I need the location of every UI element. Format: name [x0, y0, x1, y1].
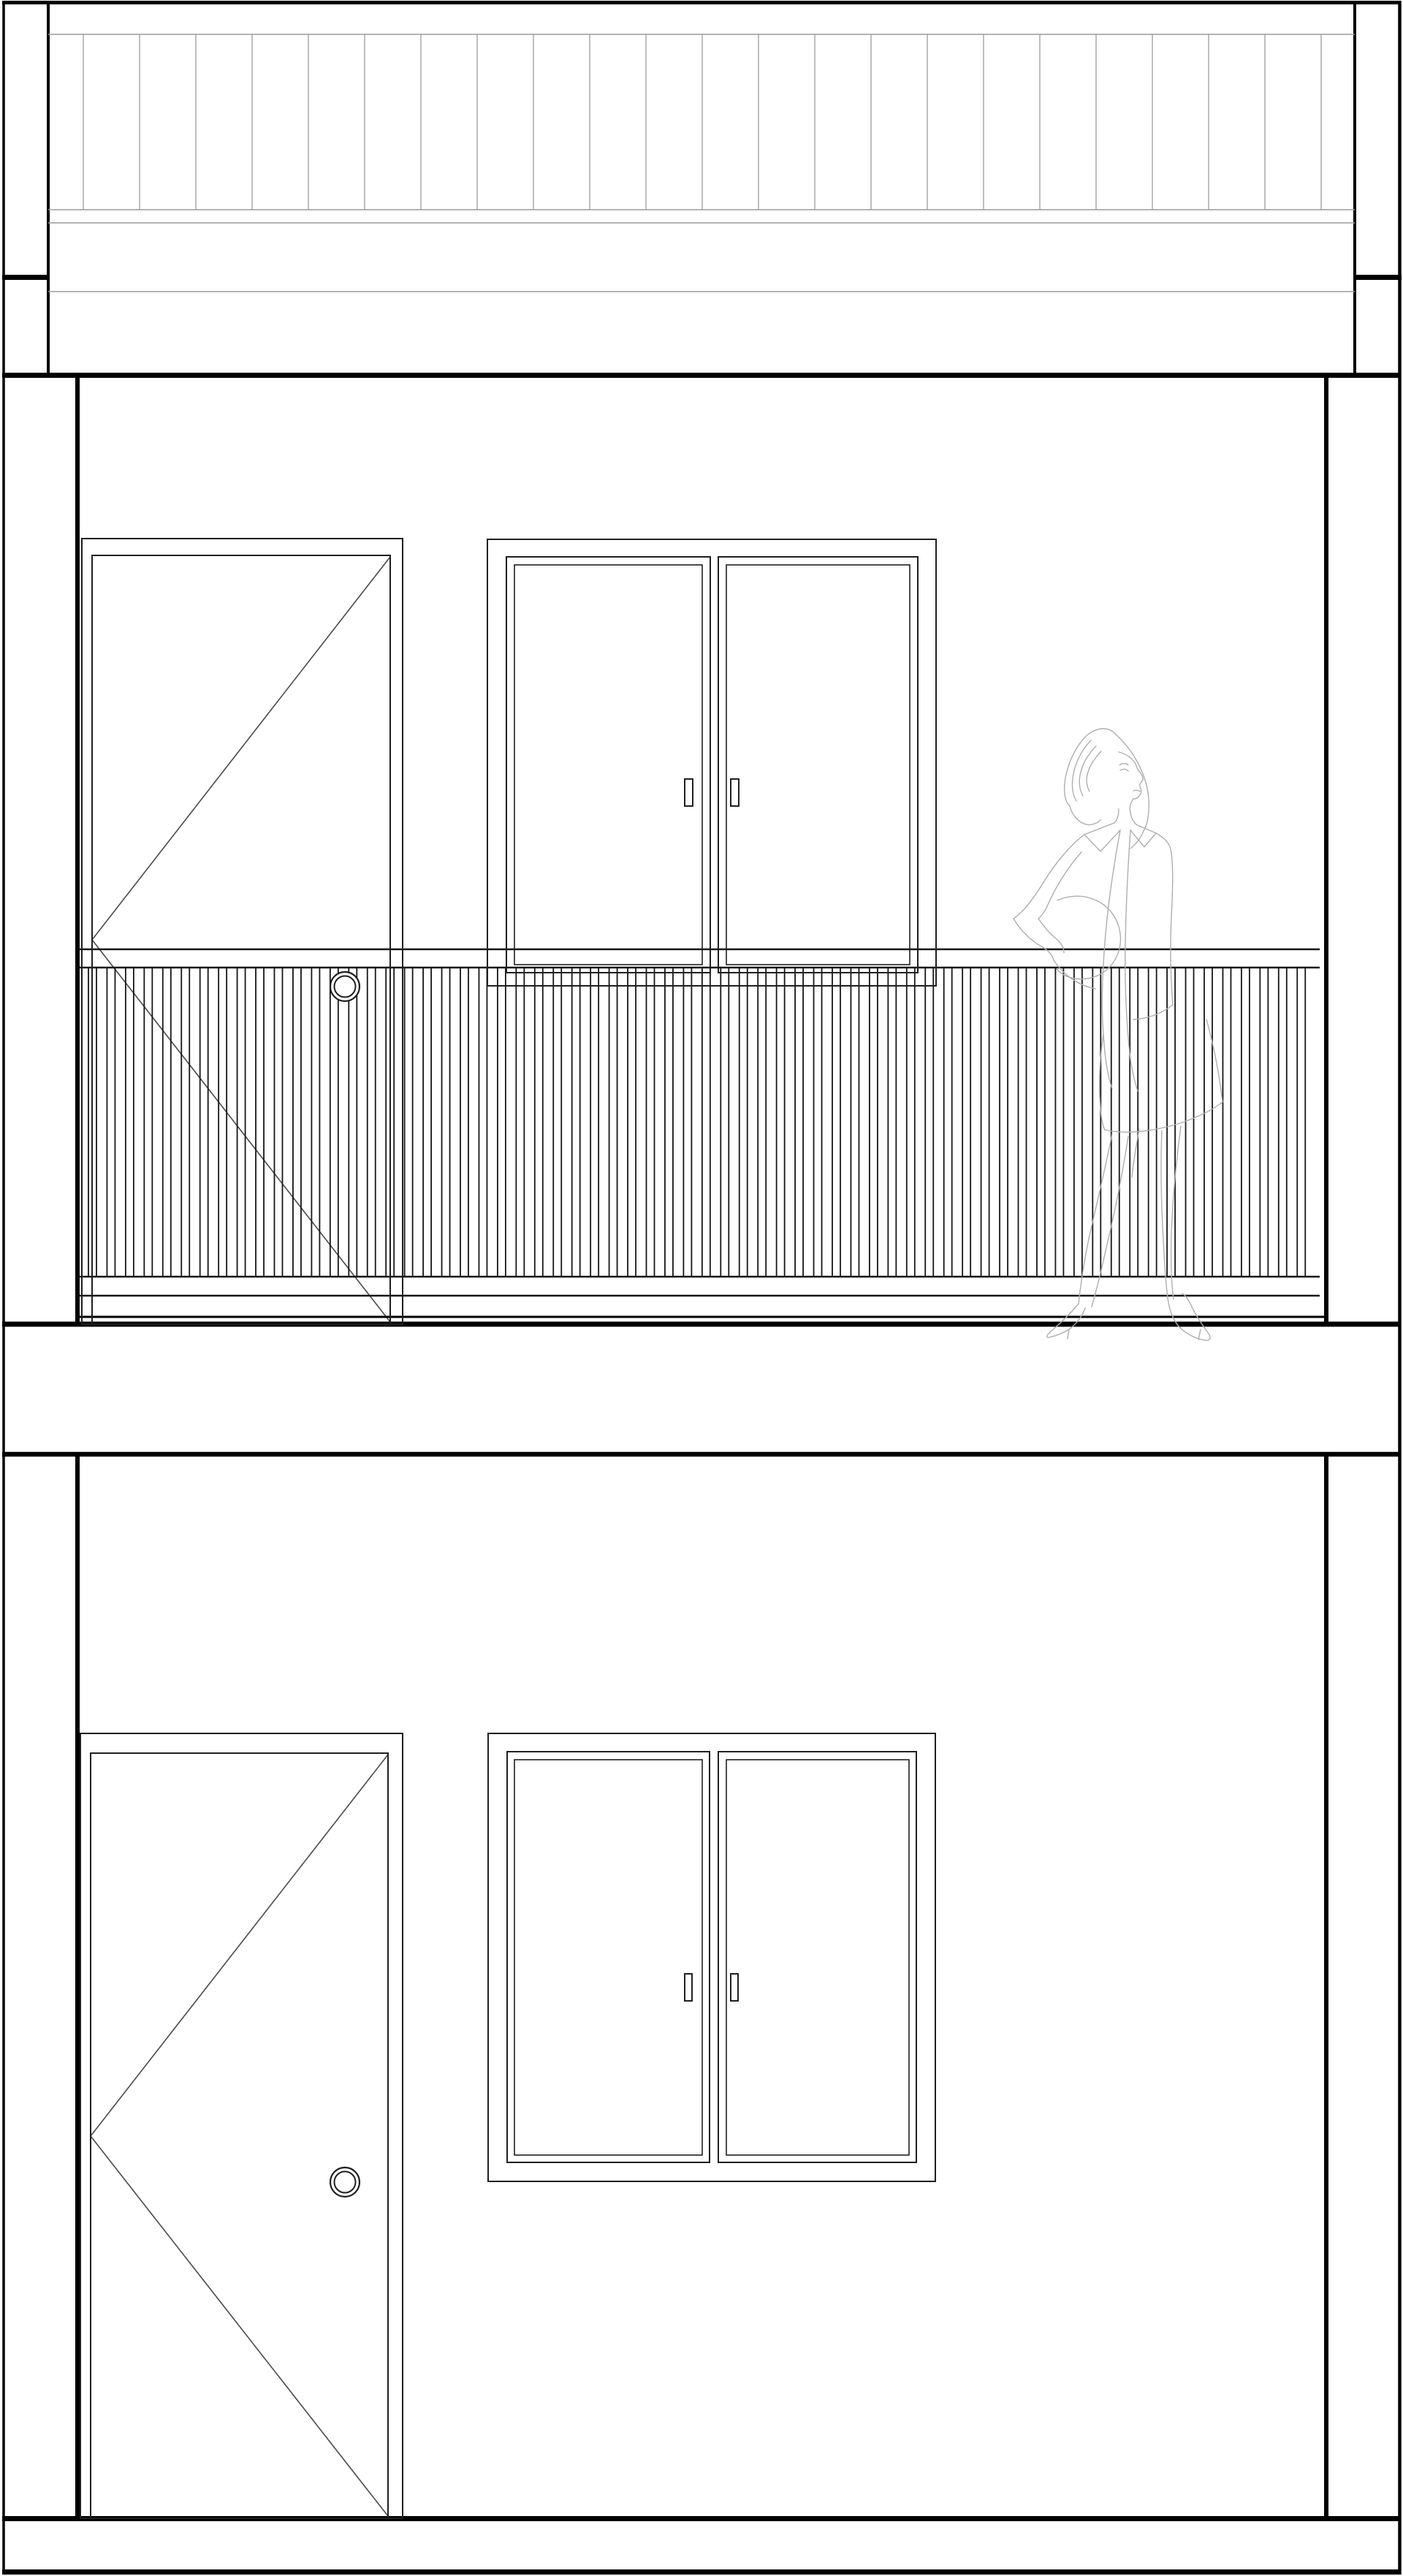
right-heel — [1198, 1329, 1201, 1340]
baluster — [962, 968, 970, 1277]
baluster — [572, 968, 580, 1277]
baluster — [144, 968, 152, 1277]
baluster — [256, 968, 264, 1277]
baluster — [832, 968, 840, 1277]
baluster — [163, 968, 171, 1277]
baluster — [200, 968, 208, 1277]
baluster — [1037, 968, 1045, 1277]
upper-window-right-sash — [718, 557, 918, 973]
baluster — [516, 968, 524, 1277]
lower-door-swing-upper — [91, 1755, 388, 2136]
upper-door-outer-frame — [82, 539, 403, 1324]
baluster — [1000, 968, 1008, 1277]
baluster — [423, 968, 431, 1277]
baluster — [368, 968, 376, 1277]
left-heel — [1068, 1329, 1069, 1339]
baluster — [981, 968, 989, 1277]
baluster — [479, 968, 487, 1277]
baluster — [498, 968, 506, 1277]
baluster — [218, 968, 227, 1277]
door-knobs-group — [330, 972, 360, 2197]
lower-door-inner-frame — [91, 1753, 388, 2518]
baluster — [665, 968, 673, 1277]
bust-curve — [1057, 896, 1120, 979]
hair-bottom — [1070, 806, 1100, 825]
baluster — [683, 968, 691, 1277]
right-column-floor-marker — [1353, 275, 1402, 280]
baluster — [758, 968, 766, 1277]
baluster — [907, 968, 915, 1277]
baluster — [1279, 968, 1287, 1277]
baluster — [553, 968, 561, 1277]
baluster — [107, 968, 115, 1277]
left-shoe — [1047, 1304, 1085, 1337]
baluster — [925, 968, 933, 1277]
face-profile — [1119, 752, 1143, 813]
roof-panels-group — [83, 34, 1321, 210]
lower-window-left-glass — [514, 1760, 702, 2155]
baluster — [460, 968, 468, 1277]
baluster — [1019, 968, 1027, 1277]
eye — [1120, 770, 1128, 771]
doors-windows-group — [80, 539, 936, 2518]
torso-right — [1156, 833, 1173, 1005]
baluster — [1130, 968, 1138, 1277]
baluster — [590, 968, 598, 1277]
lower-window-right-handle — [731, 1974, 738, 2001]
baluster — [1092, 968, 1100, 1277]
baluster — [870, 968, 878, 1277]
baluster — [237, 968, 246, 1277]
baluster — [609, 968, 617, 1277]
baluster — [628, 968, 636, 1277]
jacket-front-right — [1125, 830, 1138, 1091]
hair-outer — [1065, 729, 1149, 831]
baluster — [535, 968, 543, 1277]
arm-inner — [1038, 852, 1081, 953]
baluster — [647, 968, 655, 1277]
baluster — [293, 968, 301, 1277]
upper-window-left-glass — [514, 565, 702, 965]
elevation-sheet — [0, 0, 1403, 2576]
baluster — [851, 968, 859, 1277]
baluster — [888, 968, 896, 1277]
upper-window-outer-frame — [487, 539, 936, 986]
upper-window-right-glass — [726, 565, 910, 965]
baluster — [944, 968, 952, 1277]
baluster — [275, 968, 283, 1277]
baluster — [126, 968, 134, 1277]
right-leg-outer — [1171, 1126, 1181, 1299]
left-leg-outer — [1079, 1133, 1112, 1304]
neck-left — [1114, 809, 1119, 823]
collar-right — [1130, 825, 1156, 847]
lower-window-right-glass — [726, 1760, 909, 2155]
baluster — [795, 968, 803, 1277]
lower-window-right-sash — [718, 1752, 916, 2162]
baluster — [739, 968, 748, 1277]
baluster — [1055, 968, 1063, 1277]
baluster — [720, 968, 729, 1277]
left-column-floor-marker — [2, 275, 50, 280]
lips — [1133, 790, 1140, 791]
baluster — [702, 968, 710, 1277]
upper-door-swing-upper — [92, 557, 390, 940]
baluster — [405, 968, 413, 1277]
baluster — [1260, 968, 1268, 1277]
neck-right — [1130, 813, 1137, 825]
baluster — [181, 968, 189, 1277]
hair-strand-3 — [1087, 751, 1101, 791]
baluster — [1242, 968, 1250, 1277]
hair-tail — [1130, 831, 1144, 848]
elevation-drawing — [0, 0, 1403, 2576]
upper-door-inner-frame — [92, 555, 390, 1324]
lower-door-outer-frame — [80, 1733, 403, 2518]
lower-window-outer-frame — [488, 1733, 935, 2181]
baluster — [1186, 968, 1194, 1277]
baluster — [442, 968, 450, 1277]
eyebrow — [1119, 764, 1128, 765]
baluster — [330, 968, 338, 1277]
baluster — [1297, 968, 1305, 1277]
baluster — [814, 968, 822, 1277]
railing-balusters-group — [88, 968, 1305, 1277]
baluster — [349, 968, 357, 1277]
skirt-right — [1206, 1019, 1223, 1102]
structure-lines-group — [2, 1, 1402, 2575]
collar-left — [1084, 823, 1120, 851]
upper-window-left-sash — [506, 557, 710, 973]
arm-outer — [1014, 835, 1084, 960]
lower-window-left-handle — [685, 1974, 692, 2001]
lower-window-left-sash — [507, 1752, 710, 2162]
baluster — [1111, 968, 1119, 1277]
upper-window-left-handle — [685, 779, 693, 806]
baluster — [1204, 968, 1212, 1277]
baluster — [1223, 968, 1231, 1277]
baluster — [1149, 968, 1157, 1277]
left-leg-inner — [1092, 1136, 1128, 1307]
baluster — [1074, 968, 1082, 1277]
baluster — [777, 968, 785, 1277]
upper-window-right-handle — [731, 779, 739, 806]
